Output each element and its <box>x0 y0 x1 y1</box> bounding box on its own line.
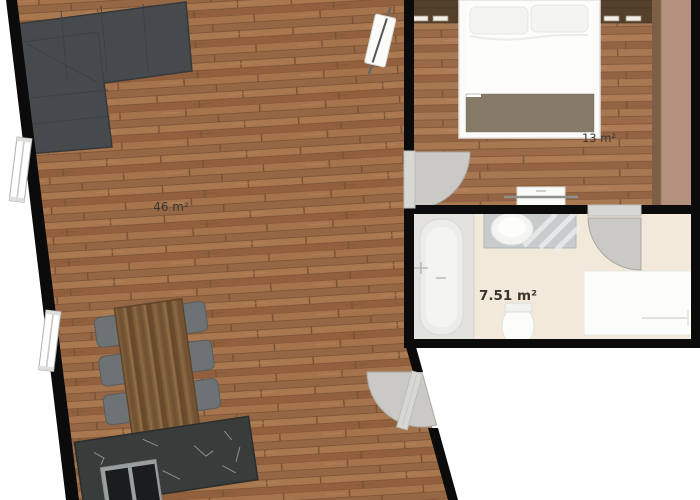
washbasin-vanity <box>484 211 580 250</box>
bathtub <box>412 210 474 344</box>
living-bathroom-wall <box>404 208 414 342</box>
living-bedroom-wall <box>404 0 414 151</box>
headboard-cabinet-right <box>600 0 653 23</box>
bathroom-area-label: 7.51 m² <box>479 288 537 304</box>
drawer-handle <box>604 16 619 21</box>
headboard-cabinet-left <box>409 0 459 23</box>
pillow <box>470 7 528 34</box>
wardrobe <box>652 0 693 207</box>
double-bed <box>459 0 600 138</box>
drawer-handle <box>626 16 641 21</box>
drawer-handle <box>433 16 448 21</box>
floor-plan-svg: 46 m² 13 m² 7.51 m² <box>0 0 700 500</box>
bathroom-bottom-wall <box>404 339 700 348</box>
blanket <box>466 94 594 132</box>
bathroom-door-leaf <box>588 205 641 216</box>
pillow <box>531 5 588 32</box>
floor-plan: 46 m² 13 m² 7.51 m² <box>0 0 700 500</box>
living-room-area-label: 46 m² <box>153 200 189 214</box>
bathroom-cabinet <box>584 271 692 335</box>
bedroom-area-label: 13 m² <box>582 131 616 145</box>
bedroom-door-leaf <box>404 151 415 208</box>
drawer-handle <box>413 16 428 21</box>
window-1 <box>9 137 32 202</box>
right-wall <box>691 0 700 348</box>
bedroom-bathroom-wall-left <box>404 205 588 214</box>
